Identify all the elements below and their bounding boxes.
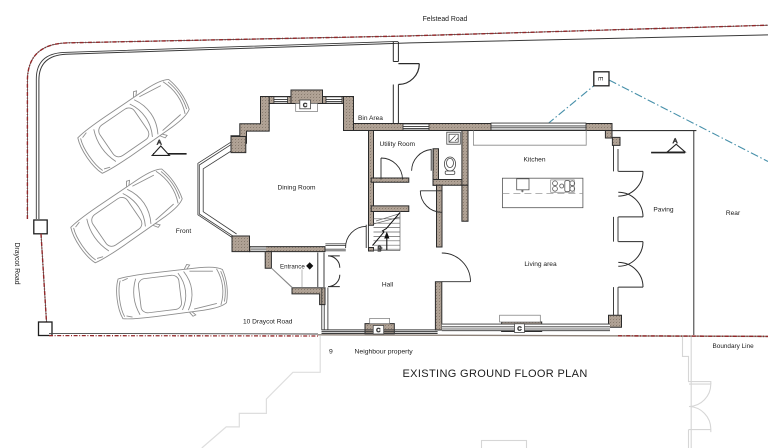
svg-text:Dining Room: Dining Room [277, 184, 316, 191]
svg-text:E: E [597, 77, 604, 82]
svg-text:10 Draycot Road: 10 Draycot Road [243, 319, 293, 326]
svg-text:C: C [376, 328, 380, 334]
svg-text:Front: Front [176, 228, 192, 235]
svg-text:Felstead Road: Felstead Road [423, 16, 468, 23]
svg-text:Entrance: Entrance [280, 264, 305, 271]
svg-text:Paving: Paving [653, 207, 673, 214]
svg-text:Kitchen: Kitchen [524, 157, 546, 164]
svg-text:Draycot Road: Draycot Road [13, 242, 20, 284]
svg-text:9: 9 [329, 348, 333, 355]
svg-text:C: C [517, 326, 521, 332]
svg-text:Hall: Hall [382, 282, 394, 289]
svg-text:A: A [157, 140, 162, 147]
svg-text:up: up [377, 246, 383, 252]
svg-text:EXISTING GROUND FLOOR PLAN: EXISTING GROUND FLOOR PLAN [403, 368, 588, 380]
svg-text:Living area: Living area [524, 261, 557, 268]
svg-text:A: A [673, 138, 678, 145]
svg-text:Utility Room: Utility Room [380, 141, 416, 148]
svg-text:Bin Area: Bin Area [358, 115, 383, 122]
svg-text:Neighbour property: Neighbour property [355, 348, 414, 355]
svg-text:Boundary Line: Boundary Line [713, 343, 755, 350]
svg-text:Rear: Rear [726, 210, 741, 217]
svg-text:C: C [303, 103, 307, 109]
